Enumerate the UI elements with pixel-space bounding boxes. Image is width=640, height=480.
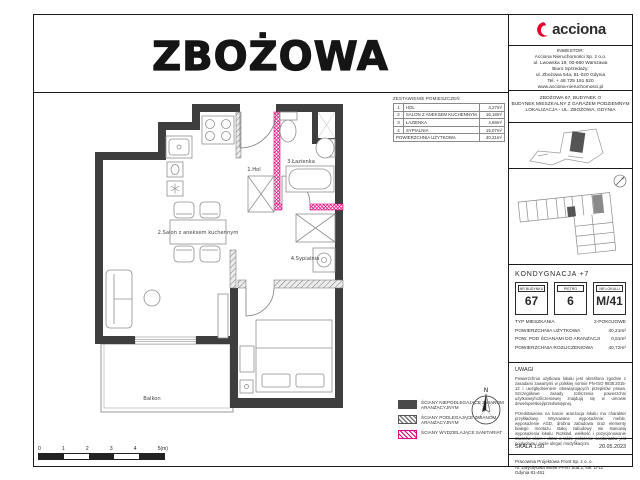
- scale-tick: 4: [134, 446, 137, 452]
- scale-bar: 0 1 2 3 4 5(m): [38, 446, 170, 460]
- site-map: [508, 122, 633, 168]
- unit-id-block: KONDYGNACJA +7 NR BUDYNKU 67 PIĘTRO 6 NR…: [508, 264, 633, 362]
- scale-tick: 3: [110, 446, 113, 452]
- investor-block: INWESTOR: Acciona Nieruchomości Sp. z o.…: [508, 45, 633, 90]
- room-no: 2: [394, 111, 404, 119]
- corridor-wardrobe: [296, 214, 335, 242]
- uwagi-title: UWAGI: [515, 367, 633, 373]
- spec-row: POWIERZCHNIA ROZLICZENIOWA 40,72m²: [508, 345, 633, 354]
- floor-number-box: PIĘTRO 6: [554, 282, 587, 315]
- spec-label: POWIERZCHNIA ROZLICZENIOWA: [515, 345, 593, 354]
- building-number-value: 67: [516, 294, 547, 308]
- compass-north-label: N: [484, 387, 489, 394]
- room-area: 15,07m²: [479, 126, 504, 134]
- hall-wardrobe: [248, 176, 274, 212]
- hatch-wall-swatch: [398, 415, 417, 424]
- legend-label: ŚCIANY NIEPODLEGAJĄCE ZMIANOM ARANŻACYJN…: [421, 400, 508, 411]
- spec-label: POW. POD ŚCIANAMI DO ARANŻACJI: [515, 336, 600, 345]
- spec-row: POWIERZCHNIA UŻYTKOWA 40,21m²: [508, 328, 633, 337]
- studio-line: Gdynia 81-451: [515, 470, 626, 476]
- scale-tick: 1: [62, 446, 65, 452]
- room-name: ŁAZIENKA: [403, 119, 479, 127]
- room-schedule: ZESTAWIENIE POMIESZCZEŃ 1 HOL 4,27m² 2 S…: [393, 96, 505, 142]
- date-label: 20.05.2023: [599, 444, 626, 449]
- room-name: HOL: [403, 104, 479, 112]
- highlighted-unit: [592, 194, 603, 213]
- toilet: [280, 112, 297, 142]
- bathtub: [286, 166, 334, 192]
- legend-item: ŚCIANY NIEPODLEGAJĄCE ZMIANOM ARANŻACYJN…: [398, 400, 508, 411]
- bedroom-door: [246, 288, 274, 316]
- floor-number-label: PIĘTRO: [557, 285, 584, 292]
- entry-door: [240, 112, 276, 148]
- uwagi-block: UWAGI Powierzchnia użytkowa lokalu jest …: [508, 362, 633, 438]
- legend-item: ŚCIANY WYDZIELAJĄCE SANITARIAT: [398, 430, 508, 439]
- room-area: 4,69m²: [479, 119, 504, 127]
- room-name: SYPIALNIA: [403, 126, 479, 134]
- balcony-door: [135, 337, 196, 344]
- spec-value: 2-POKOJOWE: [594, 319, 626, 328]
- kitchen-appliances: [167, 162, 183, 196]
- scale-block: SKALA 1:50 20.05.2023: [508, 438, 633, 454]
- zbozowa-logo: ZBOŻOWA: [33, 34, 508, 80]
- legend-item: ŚCIANY PODLEGAJĄCE ZMIANOM ARANŻACYJNYM: [398, 415, 508, 426]
- label-hol: 1.Hol: [247, 167, 260, 173]
- project-line: LOKALIZACJA - UL. ZBOŻOWA, GDYNIA: [508, 108, 633, 114]
- spec-label: POWIERZCHNIA UŻYTKOWA: [515, 328, 580, 337]
- scale-tick: 5(m): [158, 446, 168, 452]
- building-number-box: NR BUDYNKU 67: [515, 282, 548, 315]
- room-no: 4: [394, 126, 404, 134]
- acciona-wordmark: acciona: [552, 21, 606, 38]
- room-no: 1: [394, 104, 404, 112]
- spec-row: POW. POD ŚCIANAMI DO ARANŻACJI 0,51m²: [508, 336, 633, 345]
- spec-label: TYP MIESZKANIA: [515, 319, 555, 328]
- spec-row: TYP MIESZKANIA 2-POKOJOWE: [508, 319, 633, 328]
- stove: [202, 116, 234, 144]
- floorplan-sheet: ZBOŻOWA: [0, 0, 640, 480]
- info-panel: acciona INWESTOR: Acciona Nieruchomości …: [508, 14, 633, 467]
- brand-block: acciona: [508, 14, 633, 45]
- kitchen-sink: [166, 136, 192, 158]
- uwagi-paragraph: Powierzchnia użytkowa lokalu jest określ…: [515, 376, 626, 407]
- building-number-label: NR BUDYNKU: [518, 285, 545, 292]
- room-area: 4,27m²: [479, 104, 504, 112]
- project-title-block: ZBOŻOWA 67, BUDYNEK O BUDYNEK MIESZKALNY…: [508, 90, 633, 122]
- investor-label: INWESTOR:: [508, 49, 633, 54]
- kondygnacja-title: KONDYGNACJA +7: [515, 271, 633, 278]
- bed: [240, 320, 332, 393]
- room-area: 16,18m²: [479, 111, 504, 119]
- legend-label: ŚCIANY WYDZIELAJĄCE SANITARIAT: [421, 430, 502, 435]
- sanitary-wall-swatch: [398, 430, 417, 439]
- floor-plan-drawing: 1.Hol 3.Łazienka 2.Salon z aneksem kuche…: [33, 92, 508, 448]
- balcony: [101, 344, 233, 412]
- spec-value: 40,72m²: [608, 345, 626, 354]
- table-row: 3 ŁAZIENKA 4,69m²: [394, 119, 505, 127]
- floor-number-value: 6: [555, 294, 586, 308]
- sofa: [106, 270, 228, 338]
- floor-overview-map: [508, 168, 633, 264]
- total-value: 40,21m²: [479, 134, 504, 142]
- acciona-logo-icon: [535, 21, 549, 39]
- table-row: 1 HOL 4,27m²: [394, 104, 505, 112]
- unit-number-label: NR LOKALU: [596, 285, 623, 292]
- scale-tick: 0: [38, 446, 41, 452]
- table-row: 2 SALON Z ANEKSEM KUCHENNYM 16,18m²: [394, 111, 505, 119]
- scale-label: SKALA 1:50: [515, 444, 544, 449]
- legend-label: ŚCIANY PODLEGAJĄCE ZMIANOM ARANŻACYJNYM: [421, 415, 508, 426]
- label-salon: 2.Salon z aneksem kuchennym: [158, 230, 239, 236]
- spec-value: 0,51m²: [611, 336, 626, 345]
- label-lazienka: 3.Łazienka: [287, 159, 315, 165]
- bathroom-sink: [316, 138, 335, 158]
- room-name: SALON Z ANEKSEM KUCHENNYM: [403, 111, 479, 119]
- studio-footer: Pracownia Projektowa Front Sp. z o. o. A…: [508, 454, 633, 480]
- site-building-footprint: [570, 131, 586, 153]
- scale-tick: 2: [86, 446, 89, 452]
- label-sypialnia: 4.Sypialnia: [291, 256, 320, 262]
- total-label: POWIERZCHNIA UŻYTKOWA: [394, 134, 480, 142]
- shaft: [318, 112, 335, 138]
- room-no: 3: [394, 119, 404, 127]
- table-row: 4 SYPIALNIA 15,07m²: [394, 126, 505, 134]
- solid-wall-swatch: [398, 400, 417, 409]
- mini-compass-icon: [614, 175, 626, 187]
- unit-number-box: NR LOKALU M/41: [593, 282, 626, 315]
- room-schedule-title: ZESTAWIENIE POMIESZCZEŃ: [393, 96, 505, 101]
- label-balkon: Balkon: [143, 396, 160, 402]
- unit-number-value: M/41: [594, 294, 625, 308]
- table-total-row: POWIERZCHNIA UŻYTKOWA 40,21m²: [394, 134, 505, 142]
- spec-value: 40,21m²: [608, 328, 626, 337]
- wall-legend: ŚCIANY NIEPODLEGAJĄCE ZMIANOM ARANŻACYJN…: [398, 400, 508, 443]
